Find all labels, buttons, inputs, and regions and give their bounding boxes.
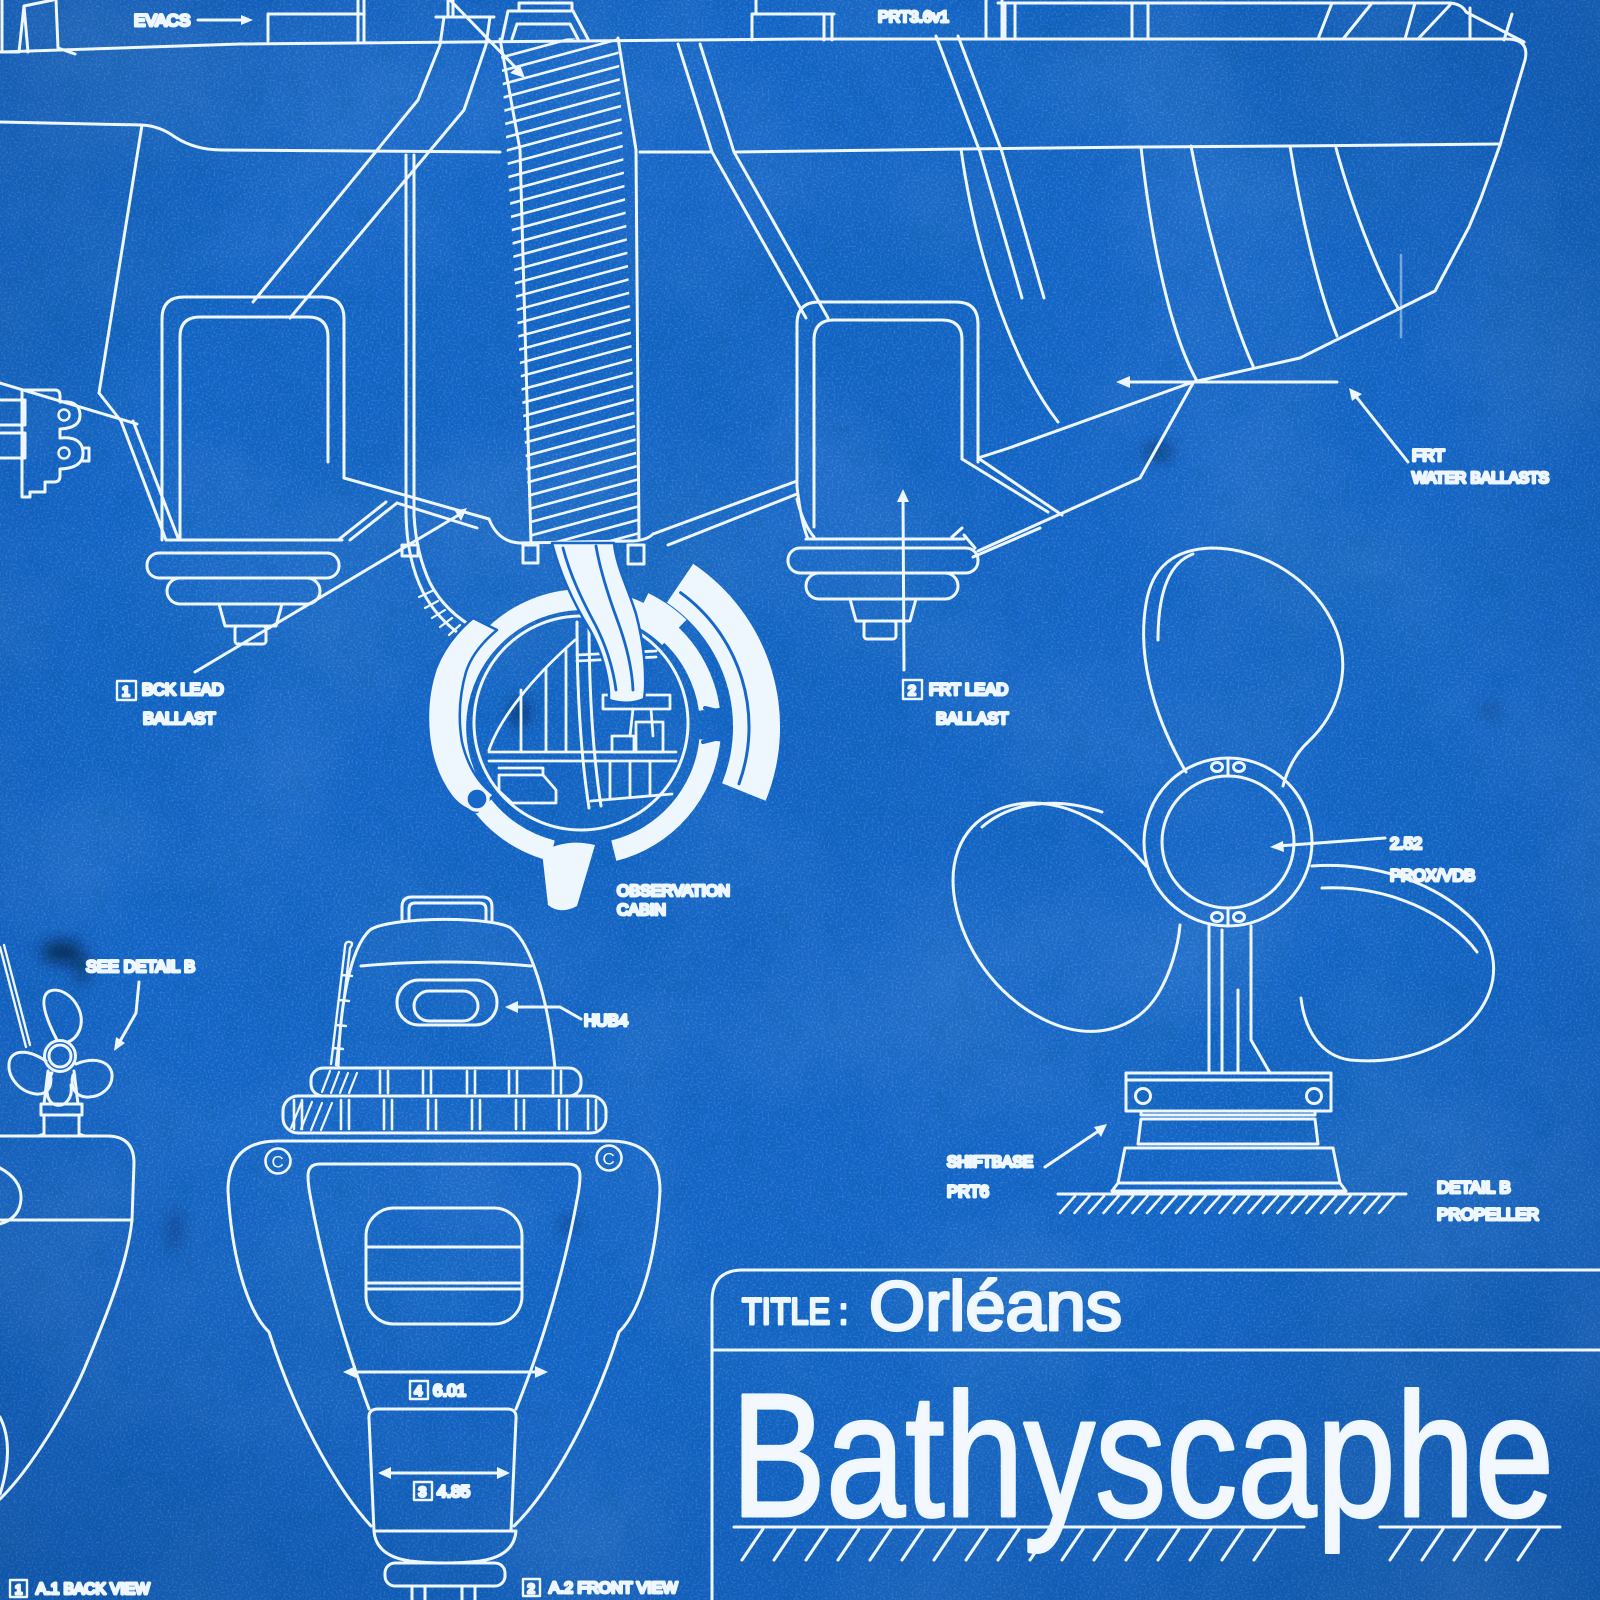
svg-text:Bathyscaphe: Bathyscaphe	[731, 1358, 1554, 1554]
svg-text:WATER BALLASTS: WATER BALLASTS	[1412, 470, 1549, 487]
svg-text:4.85: 4.85	[437, 1482, 470, 1501]
svg-text:C: C	[272, 1153, 284, 1172]
svg-text:2: 2	[908, 682, 916, 698]
svg-text:3: 3	[419, 1484, 427, 1500]
svg-text:1: 1	[122, 683, 130, 699]
svg-text:CABIN: CABIN	[617, 902, 666, 919]
svg-text:TITLE :: TITLE :	[742, 1291, 848, 1332]
svg-text:4: 4	[415, 1383, 423, 1399]
svg-text:6.01: 6.01	[433, 1381, 466, 1400]
svg-text:A.2 FRONT VIEW: A.2 FRONT VIEW	[549, 1580, 679, 1597]
svg-text:PROX/VDB: PROX/VDB	[1390, 867, 1475, 885]
svg-text:PRT3.6v1: PRT3.6v1	[878, 9, 949, 26]
svg-text:Orléans: Orléans	[869, 1267, 1122, 1345]
svg-text:SEE DETAIL B: SEE DETAIL B	[86, 958, 195, 976]
svg-text:FRT LEAD: FRT LEAD	[929, 681, 1008, 699]
svg-text:BCK LEAD: BCK LEAD	[142, 681, 224, 699]
svg-text:1: 1	[15, 1582, 22, 1597]
svg-text:PROPELLER: PROPELLER	[1437, 1205, 1539, 1224]
svg-text:C: C	[603, 1150, 615, 1169]
svg-text:OBSERVATION: OBSERVATION	[617, 883, 730, 900]
svg-text:2: 2	[528, 1581, 535, 1596]
svg-text:DETAIL B: DETAIL B	[1437, 1178, 1511, 1197]
svg-text:FRT: FRT	[1412, 446, 1445, 465]
svg-text:SHIFTBASE: SHIFTBASE	[947, 1154, 1033, 1171]
svg-text:EVACS: EVACS	[134, 11, 190, 30]
svg-text:BALLAST: BALLAST	[936, 710, 1008, 728]
svg-text:HUB4: HUB4	[584, 1012, 628, 1030]
svg-text:BALLAST: BALLAST	[143, 710, 215, 728]
svg-text:2.52: 2.52	[1390, 835, 1422, 853]
svg-text:PRT6: PRT6	[947, 1183, 989, 1201]
svg-text:A.1 BACK VIEW: A.1 BACK VIEW	[36, 1581, 150, 1598]
